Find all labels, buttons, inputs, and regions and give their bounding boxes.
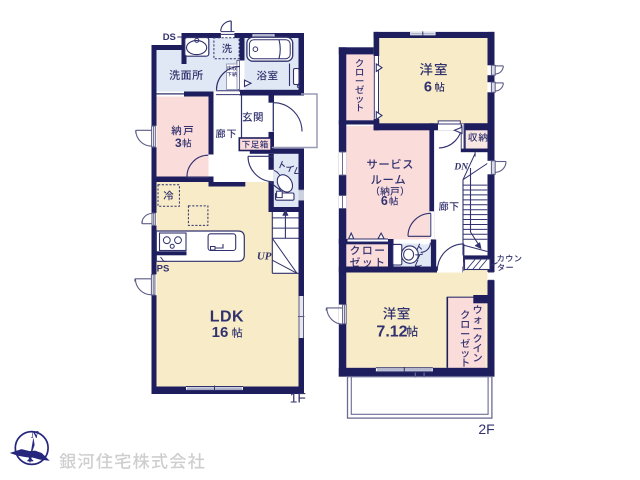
svg-text:6: 6 [381, 194, 388, 208]
svg-text:UP: UP [257, 251, 272, 263]
svg-text:6: 6 [424, 80, 432, 96]
svg-text:PS: PS [157, 264, 170, 275]
svg-text:1F: 1F [290, 390, 306, 406]
svg-text:DS: DS [163, 32, 176, 43]
svg-text:N: N [30, 430, 39, 441]
svg-text:7.12: 7.12 [376, 323, 407, 340]
svg-text:LDK: LDK [210, 309, 244, 326]
svg-text:3: 3 [175, 136, 182, 150]
svg-text:DN: DN [453, 163, 469, 173]
svg-text:2F: 2F [478, 421, 494, 437]
svg-text:16: 16 [212, 324, 229, 341]
